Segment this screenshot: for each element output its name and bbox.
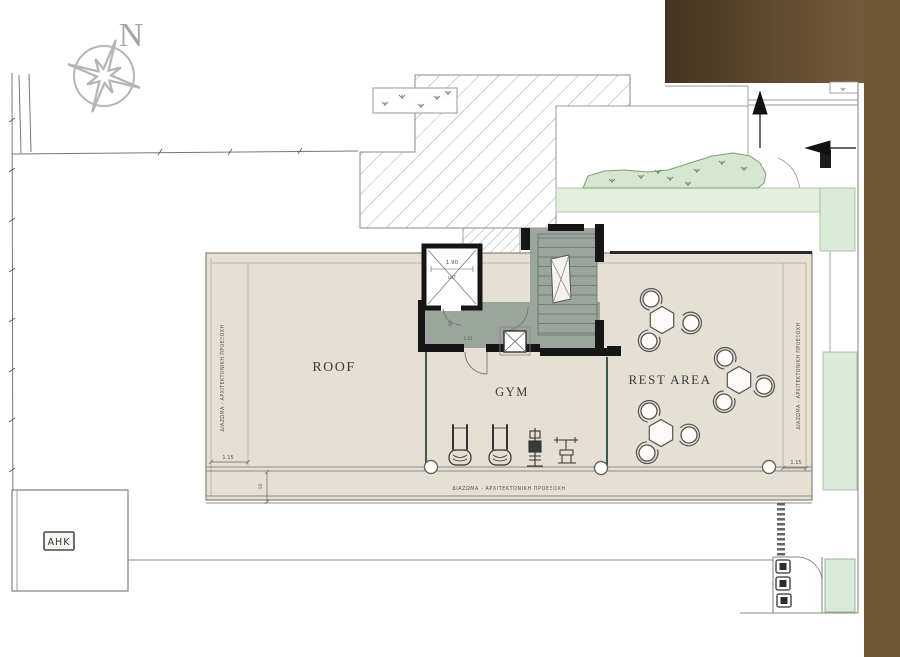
green-box-3 bbox=[825, 559, 855, 612]
dim-band-depth: .50 bbox=[258, 483, 264, 490]
hex-table bbox=[649, 420, 672, 447]
green-box-2 bbox=[823, 352, 857, 490]
dim-offset-right: 1.15 bbox=[790, 460, 801, 466]
room-label-roof: ROOF bbox=[312, 360, 355, 375]
column bbox=[595, 462, 608, 475]
dim-offset-left: 1.15 bbox=[222, 455, 233, 461]
compass-north-label: N bbox=[119, 17, 144, 54]
column bbox=[425, 461, 438, 474]
brown-band-right bbox=[864, 0, 900, 657]
edge-note-right: ΔΙΑΖΩΜΑ - ΑΡΧΙΤΕΚΤΟΝΙΚΗ ΠΡΟΕΞΟΧΗ bbox=[796, 323, 802, 430]
edge-note-left: ΔΙΑΖΩΜΑ - ΑΡΧΙΤΕΚΤΟΝΙΚΗ ΠΡΟΕΞΟΧΗ bbox=[220, 325, 226, 432]
skylight bbox=[500, 327, 530, 355]
dim-corridor: 2.15 bbox=[464, 336, 473, 341]
elevator-door-gap bbox=[441, 304, 461, 311]
roof-terrace: ΔΙΑΖΩΜΑ - ΑΡΧΙΤΕΚΤΟΝΙΚΗ ΠΡΟΕΞΟΧΗ ΔΙΑΖΩΜΑ… bbox=[206, 251, 812, 504]
hex-table bbox=[650, 307, 673, 334]
parapet-wall bbox=[610, 251, 812, 254]
green-box-1 bbox=[820, 188, 855, 251]
meter-boxes bbox=[776, 560, 791, 607]
ahk-label: AHK bbox=[48, 537, 71, 548]
roof-plan-drawing: N bbox=[0, 0, 900, 657]
column bbox=[763, 461, 776, 474]
floor-plan-canvas: N bbox=[0, 0, 900, 657]
room-label-rest-area: REST AREA bbox=[629, 372, 712, 387]
planter-box bbox=[373, 88, 457, 113]
planting-band bbox=[556, 188, 820, 212]
stair-newel bbox=[551, 255, 571, 303]
edge-note-bottom: ΔΙΑΖΩΜΑ - ΑΡΧΙΤΕΚΤΟΝΙΚΗ ΠΡΟΕΞΟΧΗ bbox=[452, 486, 565, 492]
room-label-gym: GYM bbox=[495, 385, 529, 399]
lift-label: LIFT bbox=[448, 275, 457, 280]
dim-lift-width: 1.90 bbox=[446, 260, 459, 266]
ahk-substation: AHK bbox=[12, 490, 128, 591]
hex-table bbox=[727, 367, 750, 394]
elevator-shaft: 1.90 LIFT bbox=[424, 246, 480, 311]
